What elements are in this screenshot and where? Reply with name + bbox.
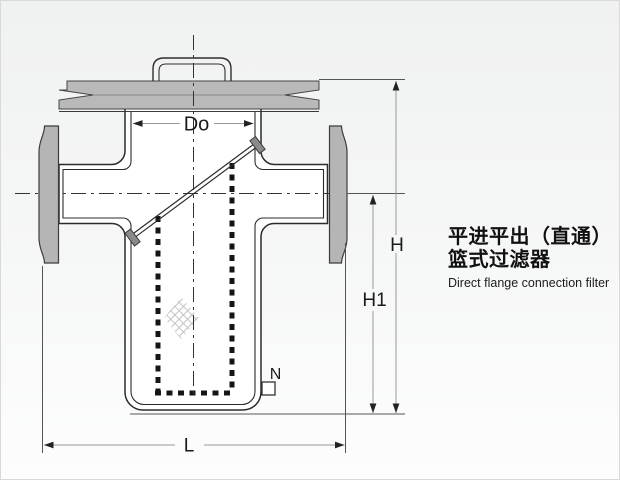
dim-do-label: Do <box>184 114 210 136</box>
dim-l-label: L <box>184 436 195 457</box>
handle-inner <box>159 64 225 81</box>
product-title-line1: 平进平出（直通） <box>448 226 613 249</box>
lifting-handle <box>153 58 231 81</box>
product-title-line2: 篮式过滤器 <box>448 249 613 272</box>
inlet-flange <box>39 126 59 263</box>
outlet-flange <box>330 126 348 263</box>
product-title-block: 平进平出（直通） 篮式过滤器 Direct flange connection … <box>448 226 613 290</box>
dim-h: H <box>390 81 404 413</box>
handle-outer <box>153 58 231 81</box>
dim-h1-label: H1 <box>362 290 386 311</box>
dim-h-label: H <box>390 235 404 256</box>
label-n: N <box>270 366 282 383</box>
cover-flange <box>59 81 319 109</box>
drain-nozzle <box>262 382 275 395</box>
product-subtitle-en: Direct flange connection filter <box>448 276 613 290</box>
dim-l: L <box>44 436 345 457</box>
dim-h1: H1 <box>362 195 386 413</box>
drawing-canvas: N Do <box>0 0 620 480</box>
